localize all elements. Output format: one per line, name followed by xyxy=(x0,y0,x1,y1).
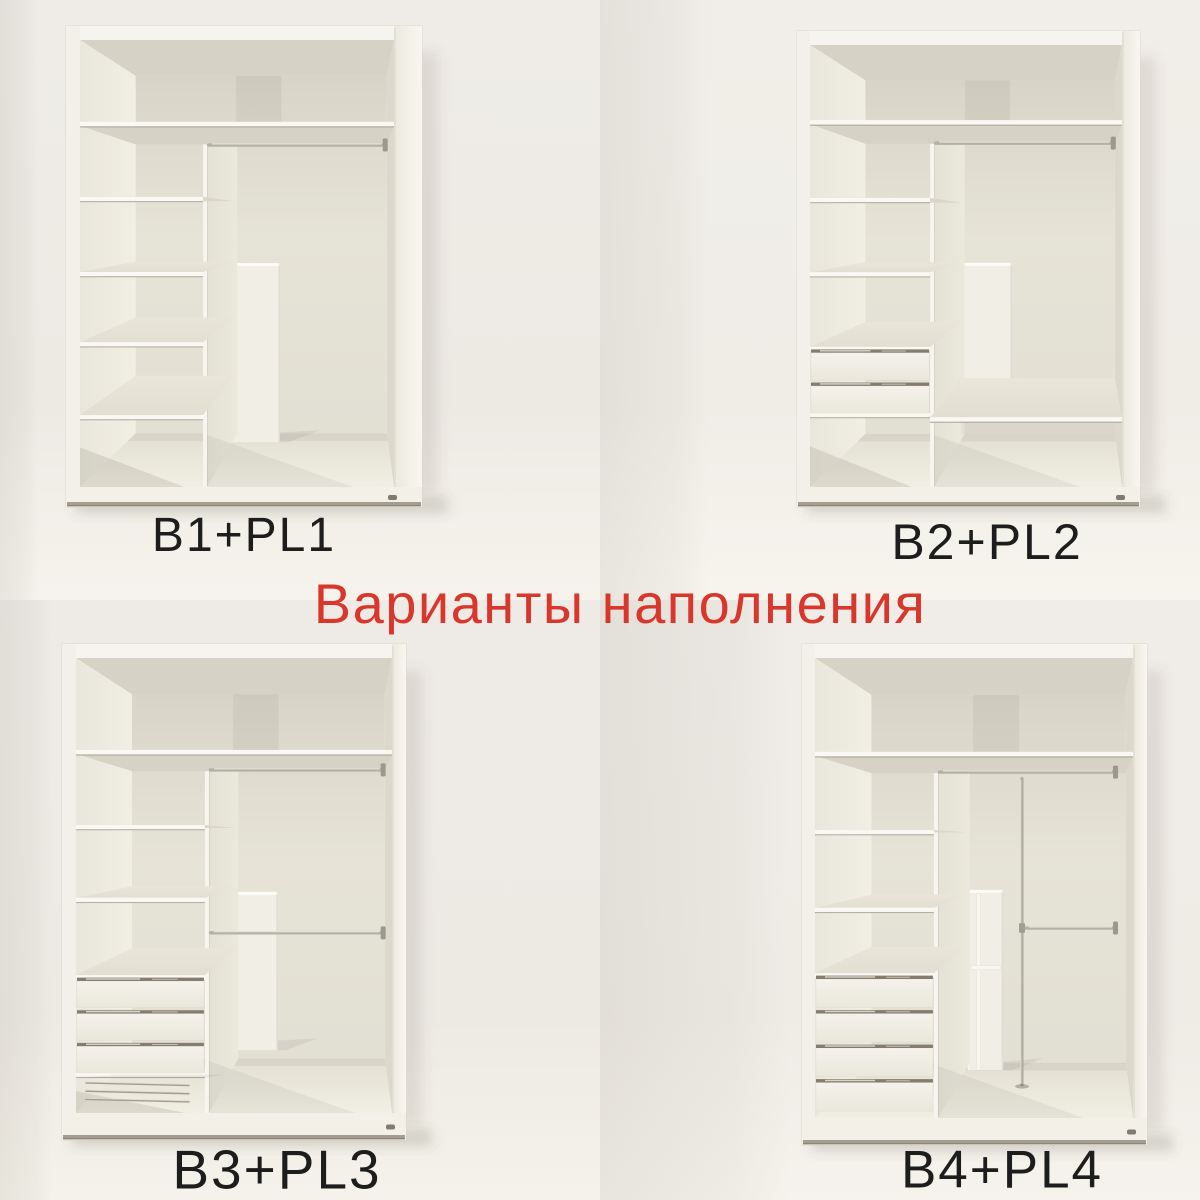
panel-variant-b1: B1+PL1 xyxy=(0,0,600,600)
wardrobe-render-b4 xyxy=(600,600,1200,1200)
panel-variant-b2: B2+PL2 xyxy=(600,0,1200,600)
variant-label-b1: B1+PL1 xyxy=(152,512,336,560)
panel-variant-b3: B3+PL3 xyxy=(0,600,600,1200)
variant-label-b4: B4+PL4 xyxy=(901,1144,1103,1197)
collage-title: Варианты наполнения xyxy=(314,576,927,632)
wardrobe-render-b2 xyxy=(600,0,1200,600)
variant-label-b3: B3+PL3 xyxy=(172,1143,381,1198)
variant-label-b2: B2+PL2 xyxy=(891,517,1082,567)
panel-variant-b4: B4+PL4 xyxy=(600,600,1200,1200)
wardrobe-render-b3 xyxy=(0,600,600,1200)
